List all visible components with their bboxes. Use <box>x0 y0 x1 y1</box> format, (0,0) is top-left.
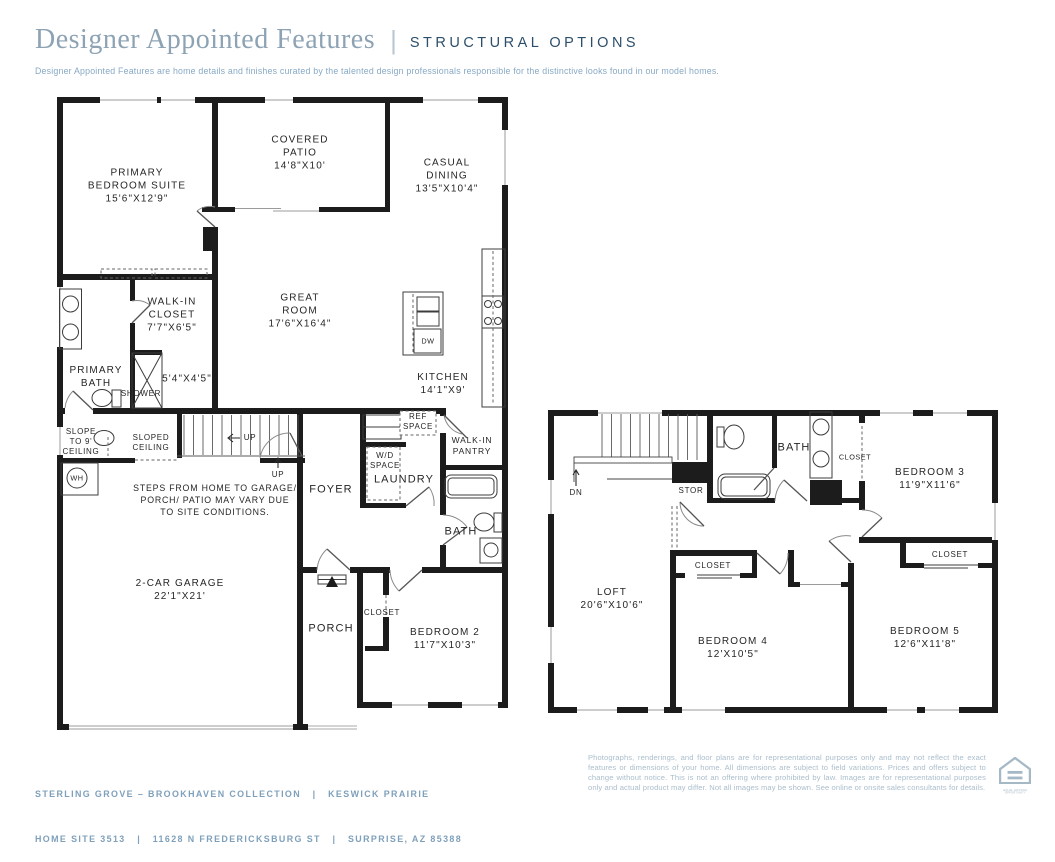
room-dims: 14'8"X10' <box>271 160 328 173</box>
entry-marker-icon <box>326 576 338 587</box>
bathtub-icon <box>718 474 770 499</box>
stairs-dn-label: DN <box>570 488 583 498</box>
toilet-icon <box>92 390 121 408</box>
title-divider: | <box>390 25 397 56</box>
first-floor-plan: PRIMARY BEDROOM SUITE 15'6"X12'9" COVERE… <box>57 97 508 730</box>
note-line: TO SITE CONDITIONS. <box>133 506 297 518</box>
room-label-kitchen: KITCHEN 14'1"X9' <box>417 371 469 397</box>
coat-shelf <box>363 415 401 439</box>
sink-icon <box>63 296 79 312</box>
page-subtitle-tag: STRUCTURAL OPTIONS <box>410 35 639 51</box>
room-dims: 15'6"X12'9" <box>88 193 186 206</box>
room-label-walk-in-pantry: WALK-IN PANTRY <box>452 435 493 457</box>
room-dims: 7'7"X6'5" <box>147 322 197 335</box>
shower-label: SHOWER <box>121 389 161 399</box>
room-label-bedroom2: BEDROOM 2 11'7"X10'3" <box>410 626 480 652</box>
room-label-foyer: FOYER <box>309 484 352 497</box>
room-dims: 13'5"X10'4" <box>415 183 478 196</box>
footer-disclaimer: Photographs, renderings, and floor plans… <box>588 753 986 793</box>
slope-ceiling-note: SLOPE TO 9' CEILING <box>63 427 100 457</box>
entry-up-label: UP <box>272 470 285 480</box>
room-name: DINING <box>415 170 478 183</box>
room-label-covered-patio: COVERED PATIO 14'8"X10' <box>271 134 328 173</box>
room-label-bath2: BATH <box>778 442 811 455</box>
room-name: WALK-IN <box>147 296 197 309</box>
note-line: W/D <box>370 451 400 461</box>
toilet-icon <box>717 425 744 449</box>
room-name: PRIMARY <box>88 167 186 180</box>
room-name: LOFT <box>580 586 643 599</box>
room-label-bath: BATH <box>445 526 478 539</box>
room-label-porch: PORCH <box>308 623 353 636</box>
room-name: GREAT <box>268 292 331 305</box>
sink-cabinet <box>480 538 502 563</box>
sloped-ceiling-note: SLOPED CEILING <box>133 433 170 453</box>
room-name: KITCHEN <box>417 371 469 384</box>
storage-label: STOR <box>679 486 704 496</box>
room-label-primary-bedroom: PRIMARY BEDROOM SUITE 15'6"X12'9" <box>88 167 186 206</box>
room-label-primary-bath: PRIMARY BATH <box>69 364 122 390</box>
second-floor-plan: DN STOR BATH CLOSET BEDROOM 3 11'9"X11'6… <box>548 410 998 713</box>
footer-community-info: STERLING GROVE – BROOKHAVEN COLLECTION |… <box>35 757 462 862</box>
note-line: SLOPE <box>63 427 100 437</box>
note-line: CEILING <box>133 443 170 453</box>
closet-bedroom5-label: CLOSET <box>932 550 968 560</box>
up-arrow-icon <box>228 434 240 442</box>
second-floor-drawing <box>548 410 998 713</box>
room-dims: 14'1"X9' <box>417 384 469 397</box>
equal-housing-logo: EQUAL HOUSING OPPORTUNITY <box>998 757 1032 801</box>
room-dims: 20'6"X10'6" <box>580 599 643 612</box>
room-name: ROOM <box>268 305 331 318</box>
note-line: TO 9' <box>63 437 100 447</box>
note-line: SPACE <box>403 422 433 432</box>
room-dims: 17'6"X16'4" <box>268 318 331 331</box>
room-name: BEDROOM 3 <box>895 466 965 479</box>
bathtub-icon <box>445 475 497 498</box>
room-name: BEDROOM 2 <box>410 626 480 639</box>
room-name: PATIO <box>271 147 328 160</box>
bath-vanity <box>810 412 832 478</box>
room-dims: 12'6"X11'8" <box>890 638 960 651</box>
room-dims: 22'1"X21' <box>136 590 225 603</box>
room-name: PANTRY <box>452 446 493 457</box>
kitchen-island <box>403 292 443 355</box>
room-label-great-room: GREAT ROOM 17'6"X16'4" <box>268 292 331 331</box>
room-name: PRIMARY <box>69 364 122 377</box>
sink-icon <box>813 419 829 435</box>
dishwasher-label: DW <box>421 337 434 346</box>
steps-disclaimer-note: STEPS FROM HOME TO GARAGE/ PORCH/ PATIO … <box>133 482 297 518</box>
shower-stall <box>132 353 162 408</box>
room-label-bedroom5: BEDROOM 5 12'6"X11'8" <box>890 625 960 651</box>
room-label-bedroom3: BEDROOM 3 11'9"X11'6" <box>895 466 965 492</box>
note-line: SPACE <box>370 461 400 471</box>
ref-space-label: REF SPACE <box>403 412 433 432</box>
note-line: PORCH/ PATIO MAY VARY DUE <box>133 494 297 506</box>
room-name: BEDROOM SUITE <box>88 180 186 193</box>
equal-housing-caption: EQUAL HOUSING OPPORTUNITY <box>998 789 1032 794</box>
room-name: CASUAL <box>415 157 478 170</box>
wd-space-label: W/D SPACE <box>370 451 400 471</box>
note-line: STEPS FROM HOME TO GARAGE/ <box>133 482 297 494</box>
community-line: STERLING GROVE – BROOKHAVEN COLLECTION |… <box>35 787 462 802</box>
page-header: Designer Appointed Features | STRUCTURAL… <box>35 24 639 56</box>
floorplan-sheet: { "header": { "title": "Designer Appoint… <box>0 0 1055 815</box>
room-label-bedroom4: BEDROOM 4 12'X10'5" <box>698 635 768 661</box>
room-label-laundry: LAUNDRY <box>374 474 434 487</box>
room-name: COVERED <box>271 134 328 147</box>
room-label-casual-dining: CASUAL DINING 13'5"X10'4" <box>415 157 478 196</box>
closet-label: CLOSET <box>364 608 400 618</box>
room-name: BEDROOM 5 <box>890 625 960 638</box>
stairs-up-label: UP <box>244 433 257 443</box>
room-label-walk-in-closet: WALK-IN CLOSET 7'7"X6'5" <box>147 296 197 335</box>
room-label-loft: LOFT 20'6"X10'6" <box>580 586 643 612</box>
walls <box>548 410 998 713</box>
closet-bedroom4-label: CLOSET <box>695 561 731 571</box>
closet-linen-label: CLOSET <box>839 453 871 462</box>
room-label-garage: 2-CAR GARAGE 22'1"X21' <box>136 577 225 603</box>
room-name: BEDROOM 4 <box>698 635 768 648</box>
sink-icon <box>63 324 79 340</box>
toilet-icon <box>474 513 502 532</box>
sink-icon <box>813 451 829 467</box>
room-name: CLOSET <box>147 309 197 322</box>
room-name: WALK-IN <box>452 435 493 446</box>
room-dims: 11'7"X10'3" <box>410 639 480 652</box>
homesite-line: HOME SITE 3513 | 11628 N FREDERICKSBURG … <box>35 832 462 847</box>
page-title: Designer Appointed Features <box>35 24 375 56</box>
room-dims: 12'X10'5" <box>698 648 768 661</box>
note-line: REF <box>403 412 433 422</box>
room-dims: 11'9"X11'6" <box>895 479 965 492</box>
equal-housing-icon <box>999 757 1031 784</box>
note-line: SLOPED <box>133 433 170 443</box>
room-name: BATH <box>69 377 122 390</box>
room-name: 2-CAR GARAGE <box>136 577 225 590</box>
water-heater-label: WH <box>70 474 83 483</box>
note-line: CEILING <box>63 447 100 457</box>
page-description: Designer Appointed Features are home det… <box>35 66 719 76</box>
shower-dims: 5'4"X4'5" <box>162 373 212 386</box>
